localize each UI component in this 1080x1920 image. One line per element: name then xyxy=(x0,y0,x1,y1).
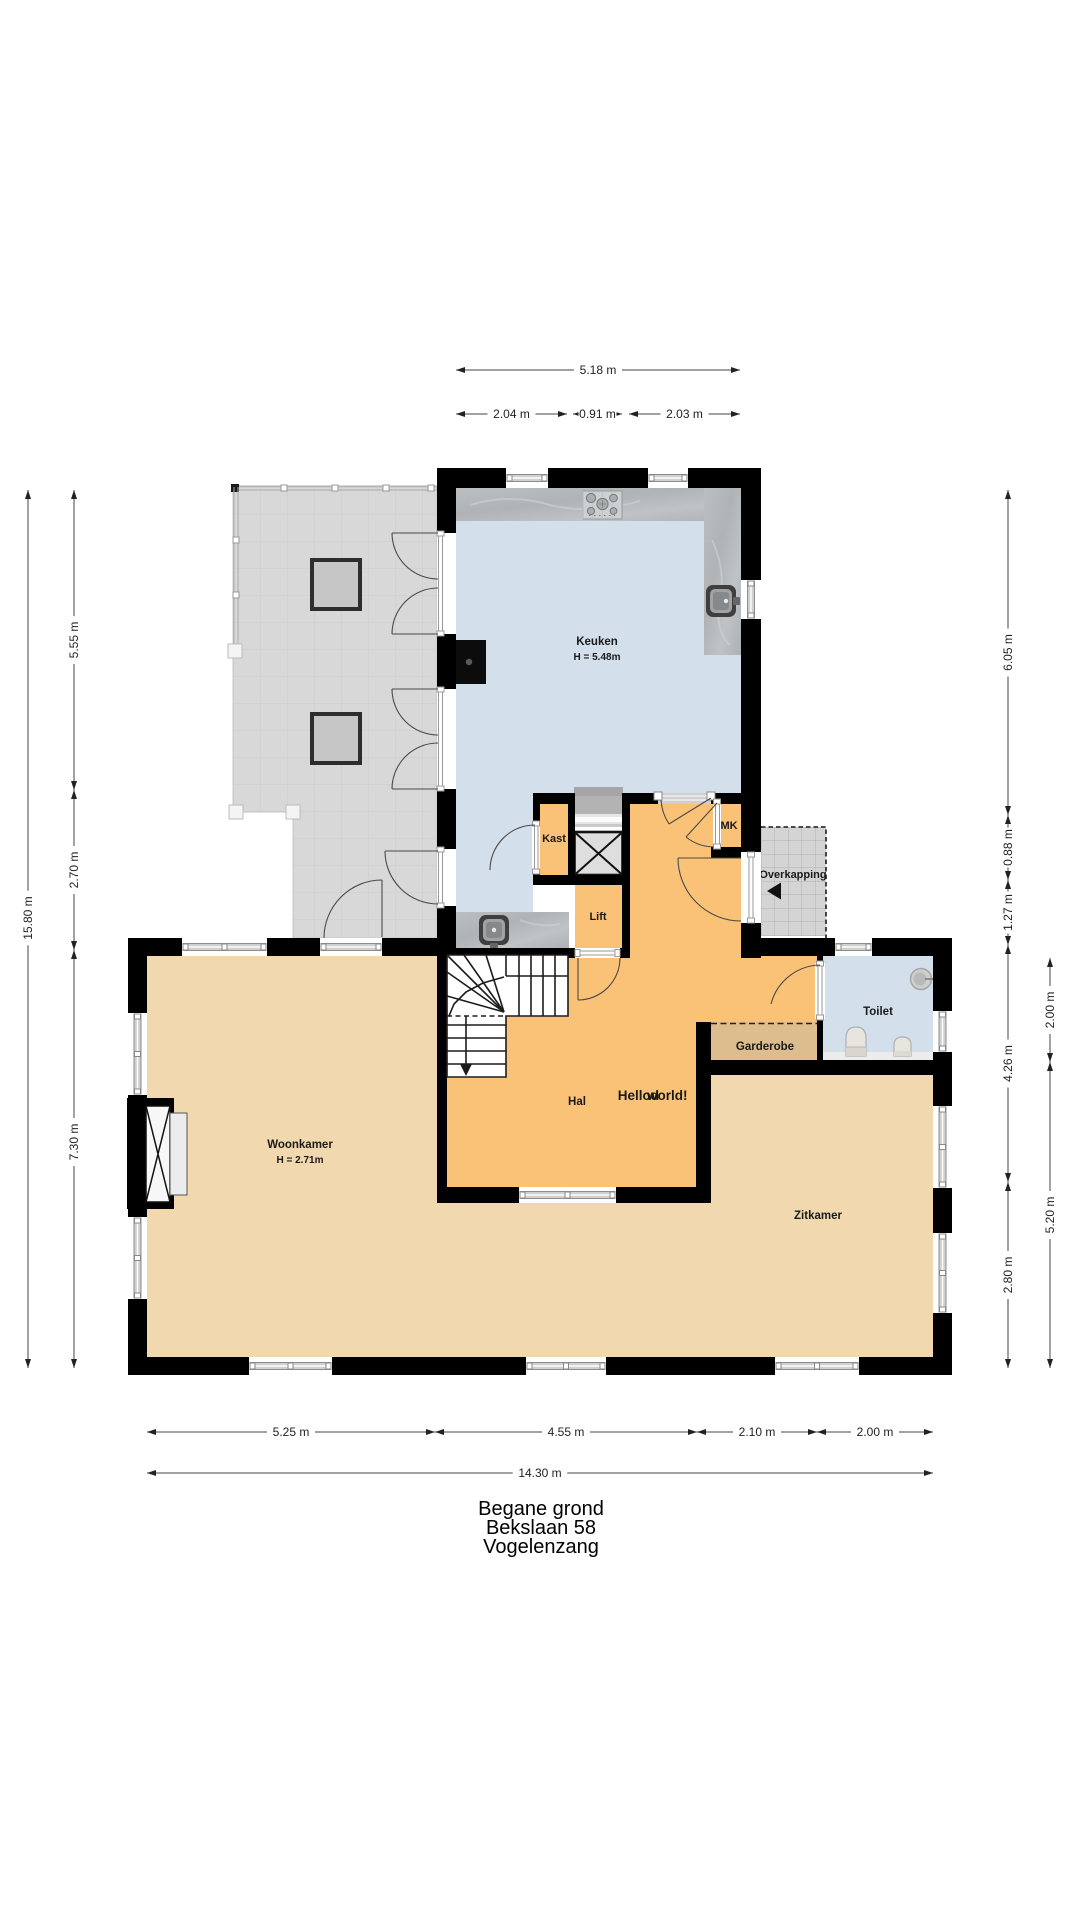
svg-text:Lift: Lift xyxy=(589,911,606,923)
svg-text:5.18 m: 5.18 m xyxy=(580,363,617,377)
svg-text:Vogelenzang: Vogelenzang xyxy=(483,1536,599,1558)
svg-text:5.25 m: 5.25 m xyxy=(273,1425,310,1439)
svg-text:2.04 m: 2.04 m xyxy=(493,407,530,421)
svg-text:4.26 m: 4.26 m xyxy=(1001,1045,1015,1082)
svg-text:Hal: Hal xyxy=(568,1096,586,1108)
svg-text:2.70 m: 2.70 m xyxy=(67,852,81,889)
svg-text:Overkapping: Overkapping xyxy=(759,869,826,881)
svg-text:7.30 m: 7.30 m xyxy=(67,1124,81,1161)
svg-text:0.88 m: 0.88 m xyxy=(1001,829,1015,866)
svg-text:15.80 m: 15.80 m xyxy=(21,896,35,939)
svg-text:2.10 m: 2.10 m xyxy=(739,1425,776,1439)
svg-text:Garderobe: Garderobe xyxy=(736,1041,794,1053)
svg-text:world!: world! xyxy=(646,1088,688,1103)
svg-text:1.27 m: 1.27 m xyxy=(1001,894,1015,931)
svg-text:2.03 m: 2.03 m xyxy=(666,407,703,421)
svg-text:MK: MK xyxy=(720,820,737,832)
svg-text:Toilet: Toilet xyxy=(863,1006,893,1018)
svg-text:2.00 m: 2.00 m xyxy=(1043,992,1057,1029)
svg-text:5.55 m: 5.55 m xyxy=(67,622,81,659)
svg-text:5.20 m: 5.20 m xyxy=(1043,1197,1057,1234)
svg-text:Kast: Kast xyxy=(542,833,566,845)
svg-text:Keuken: Keuken xyxy=(576,636,618,648)
svg-text:0.91 m: 0.91 m xyxy=(579,407,616,421)
svg-text:14.30 m: 14.30 m xyxy=(518,1466,561,1480)
svg-text:Zitkamer: Zitkamer xyxy=(794,1210,842,1222)
svg-text:Woonkamer: Woonkamer xyxy=(267,1139,333,1151)
svg-text:2.80 m: 2.80 m xyxy=(1001,1257,1015,1294)
svg-text:2.00 m: 2.00 m xyxy=(857,1425,894,1439)
svg-text:H = 2.71m: H = 2.71m xyxy=(277,1155,324,1166)
svg-text:H = 5.48m: H = 5.48m xyxy=(574,652,621,663)
svg-text:4.55 m: 4.55 m xyxy=(548,1425,585,1439)
svg-text:6.05 m: 6.05 m xyxy=(1001,634,1015,671)
